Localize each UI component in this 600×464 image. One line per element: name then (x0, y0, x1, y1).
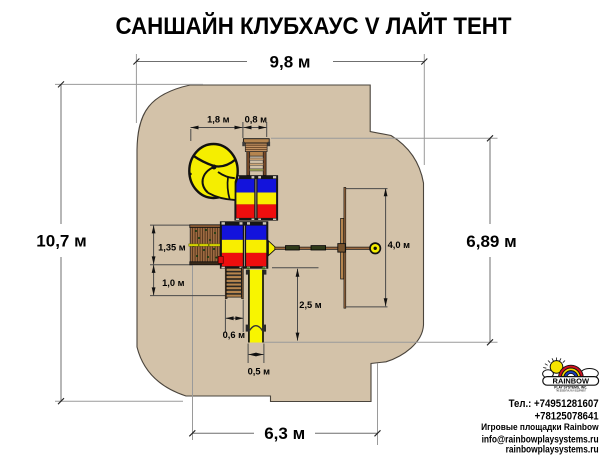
svg-text:rainbowplaysystems.ru: rainbowplaysystems.ru (506, 445, 599, 456)
svg-text:САНШАЙН КЛУБХАУС V ЛАЙТ ТЕНТ: САНШАЙН КЛУБХАУС V ЛАЙТ ТЕНТ (116, 12, 512, 40)
svg-text:Игровые площадки Rainbow: Игровые площадки Rainbow (481, 422, 599, 432)
svg-text:0,5 м: 0,5 м (248, 367, 271, 377)
svg-text:+78125078641: +78125078641 (535, 411, 599, 423)
svg-text:1,8 м: 1,8 м (207, 114, 230, 124)
svg-text:Тел.: +74951281607: Тел.: +74951281607 (509, 398, 599, 410)
svg-text:2,5 м: 2,5 м (299, 300, 322, 310)
svg-text:6,3 м: 6,3 м (264, 424, 305, 443)
svg-text:9,8 м: 9,8 м (270, 52, 311, 71)
svg-text:1,0 м: 1,0 м (162, 278, 185, 288)
svg-text:THE ESSENTIAL PLAY EQUIPMENT: THE ESSENTIAL PLAY EQUIPMENT (556, 390, 586, 393)
svg-text:1,35 м: 1,35 м (158, 243, 186, 253)
svg-text:6,89 м: 6,89 м (466, 232, 516, 251)
svg-text:4,0 м: 4,0 м (388, 240, 411, 250)
svg-text:0,8 м: 0,8 м (245, 114, 268, 124)
svg-text:10,7 м: 10,7 м (36, 232, 86, 251)
svg-text:0,6 м: 0,6 м (223, 330, 246, 340)
